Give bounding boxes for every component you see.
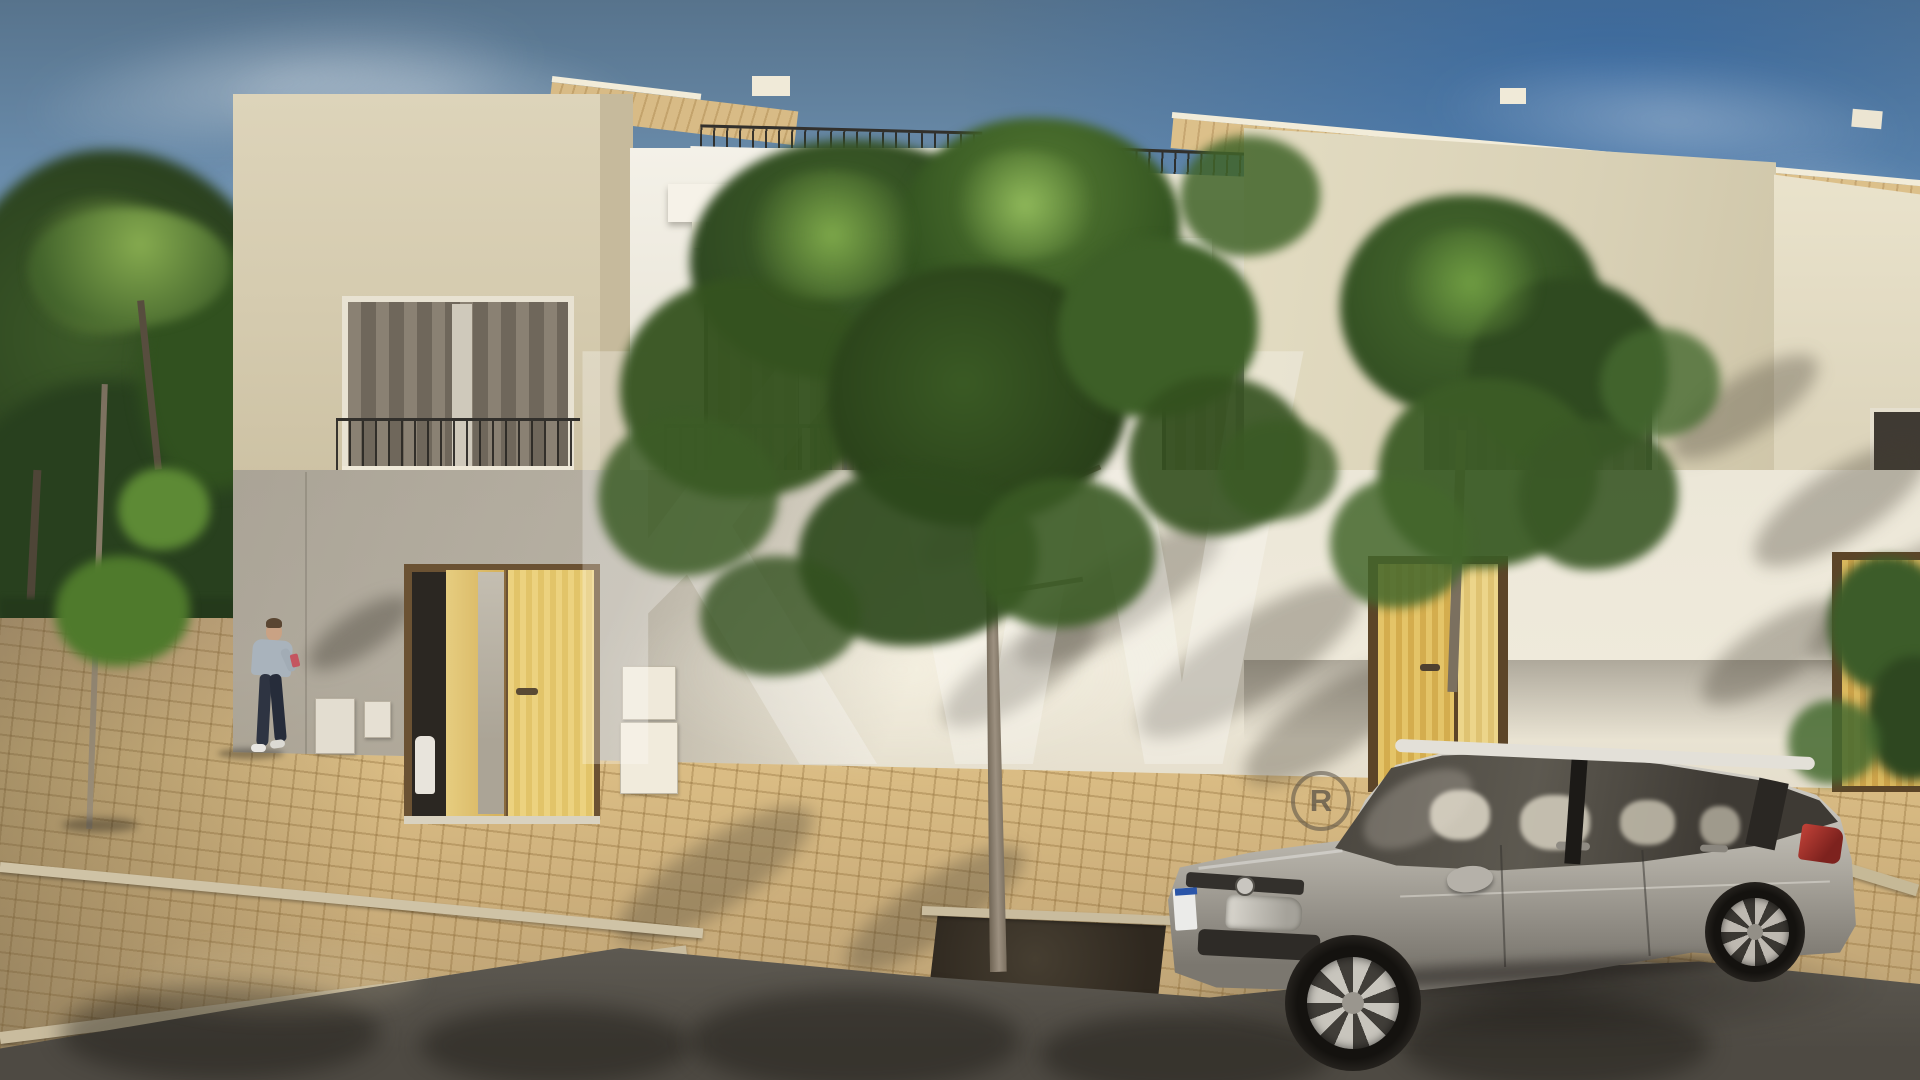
- entry-door-1-sidelight: [478, 572, 504, 814]
- car-headlight: [1225, 894, 1303, 932]
- render-canvas: KW: [0, 0, 1920, 1080]
- ground-floor-corner-edge: [305, 472, 307, 754]
- juliet-railing: [336, 418, 580, 471]
- roof-vent-block: [1851, 109, 1882, 130]
- road-sun-patch: [140, 945, 420, 1015]
- wall-panel: [315, 698, 355, 754]
- car-door-handle: [1700, 845, 1728, 853]
- roof-vent-block: [1500, 88, 1526, 104]
- car-interior-seat: [1620, 800, 1675, 845]
- road-tree-shadow: [420, 1005, 690, 1080]
- door-2-handle: [1420, 664, 1440, 671]
- wall-panel: [364, 701, 391, 738]
- door-1-handle: [516, 688, 538, 695]
- road-tree-shadow: [690, 990, 1020, 1080]
- registered-trademark-icon: R: [1291, 771, 1351, 831]
- pedestrian-hair: [266, 618, 282, 628]
- sapling-shadow: [62, 818, 138, 832]
- car-interior-seat: [1700, 806, 1740, 846]
- pedestrian-shoe: [251, 744, 266, 752]
- interior-toilet: [415, 736, 435, 794]
- roof-chimney: [752, 76, 790, 96]
- car-front-wheel-hub: [1342, 992, 1364, 1014]
- car-vw-badge: [1235, 876, 1255, 896]
- car-taillight: [1798, 823, 1845, 864]
- car-rear-wheel-hub: [1747, 924, 1763, 940]
